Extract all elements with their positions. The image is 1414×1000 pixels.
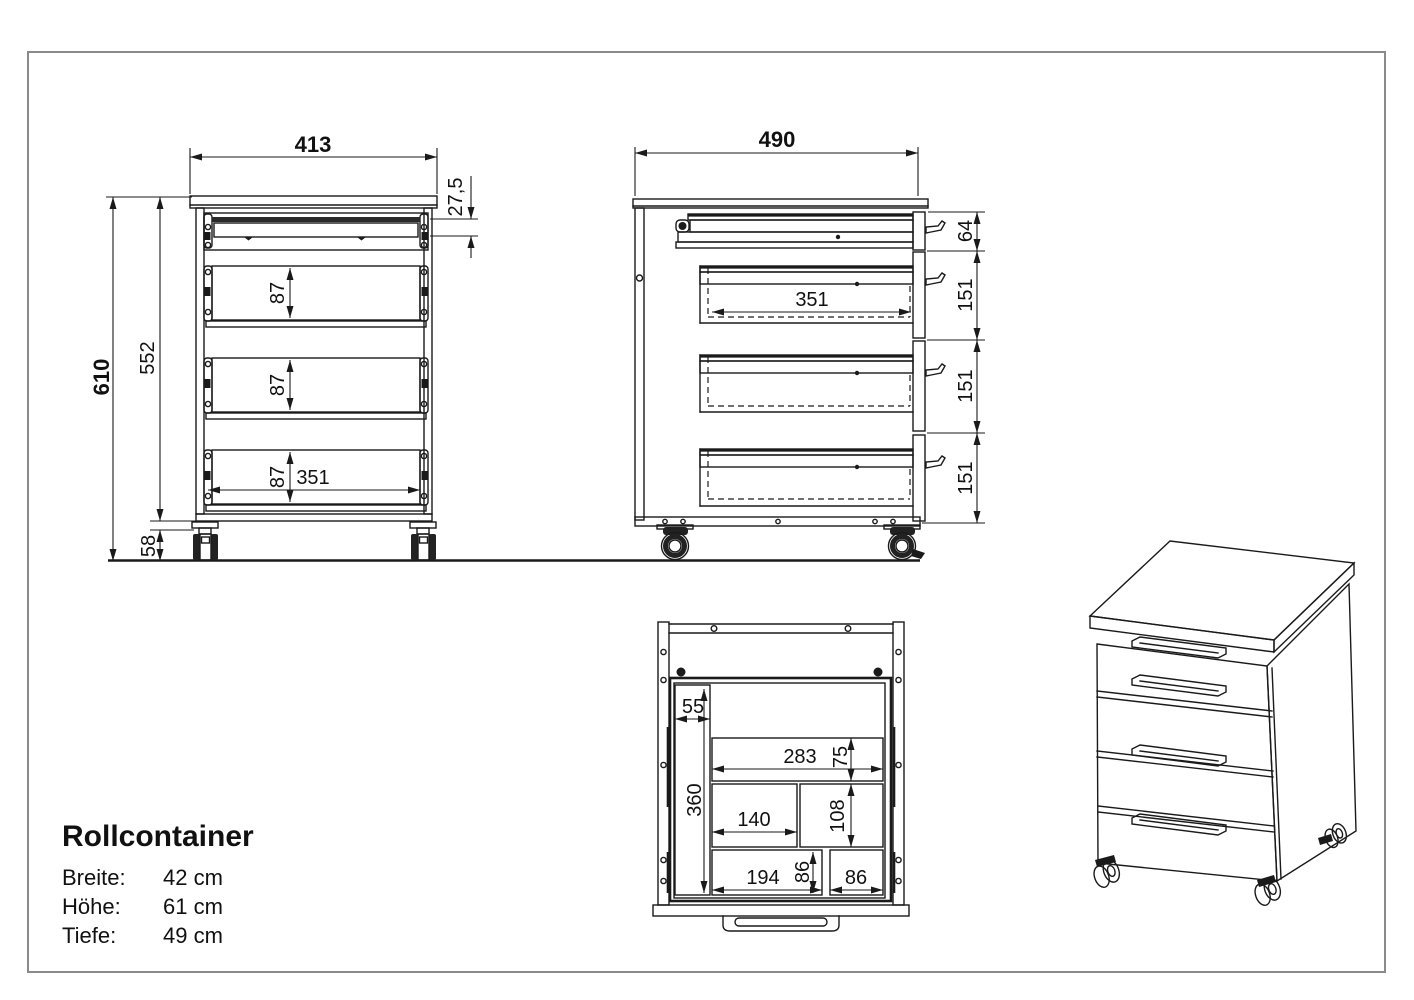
dim-front-inner-width: 351 — [296, 467, 329, 489]
product-title: Rollcontainer — [62, 820, 254, 854]
dim-front-top-gap: 27,5 — [445, 178, 467, 217]
side-caster-left — [657, 525, 693, 560]
spec-row-height: Höhe: 61 cm — [62, 892, 254, 921]
dim-comp-top-width: 283 — [783, 746, 816, 768]
dim-front-drawer2-height: 87 — [267, 282, 289, 304]
technical-drawing-page: 87 87 — [0, 0, 1414, 1000]
dim-tray-depth: 360 — [684, 783, 706, 816]
dim-front-width: 413 — [295, 132, 332, 157]
side-drawer-box-1 — [676, 214, 913, 248]
dim-comp-bottom2-width: 86 — [845, 867, 867, 889]
dim-comp-top-depth: 75 — [830, 746, 852, 768]
side-drawer-fronts — [913, 212, 945, 521]
dim-side-drawer2: 151 — [955, 278, 977, 311]
side-handle-2 — [926, 273, 945, 285]
persp-body — [1097, 584, 1356, 881]
side-caster-right — [884, 525, 925, 560]
top-view: 55 360 283 75 140 108 194 86 — [653, 622, 909, 931]
dim-comp-bottom-depth: 86 — [792, 861, 814, 883]
dim-front-caster-height: 58 — [138, 535, 160, 557]
spec-value-height: 61 cm — [163, 892, 223, 921]
dim-side-drawer3: 151 — [955, 369, 977, 402]
side-drawer-box-4 — [700, 449, 913, 506]
side-handle-1 — [926, 221, 945, 233]
dim-comp-mid-depth: 108 — [827, 799, 849, 832]
front-caster-left — [192, 522, 218, 560]
dim-front-height-total: 610 — [89, 359, 114, 396]
perspective-view — [1090, 541, 1356, 907]
spec-label-depth: Tiefe: — [62, 921, 163, 950]
persp-handles — [1132, 637, 1226, 835]
front-caster-right — [410, 522, 436, 560]
top-view-dimensions: 55 360 283 75 140 108 194 86 — [675, 689, 883, 893]
dim-comp-bottom-width: 194 — [746, 867, 779, 889]
dim-tray-width: 55 — [682, 696, 704, 718]
spec-value-width: 42 cm — [163, 863, 223, 892]
side-handle-3 — [926, 364, 945, 376]
dim-side-depth: 490 — [759, 127, 796, 152]
front-view: 87 87 — [89, 132, 920, 561]
spec-row-width: Breite: 42 cm — [62, 863, 254, 892]
dim-front-drawer4-height: 87 — [267, 466, 289, 488]
front-drawer-4: 87 351 — [204, 450, 428, 511]
dim-comp-mid-width: 140 — [737, 809, 770, 831]
persp-top-panel — [1090, 541, 1354, 652]
top-view-carcass — [658, 622, 904, 905]
front-drawer-3: 87 — [204, 358, 428, 419]
spec-value-depth: 49 cm — [163, 921, 223, 950]
spec-label-width: Breite: — [62, 863, 163, 892]
side-drawer-box-3 — [700, 355, 913, 412]
dim-front-height-body: 552 — [137, 341, 159, 374]
side-drawer-box-2: 351 — [700, 266, 913, 323]
front-drawer-1 — [204, 213, 428, 250]
side-view: 351 — [633, 127, 985, 560]
dim-side-inner-depth: 351 — [795, 289, 828, 311]
front-drawer-2: 87 — [204, 266, 428, 327]
dim-side-drawer4: 151 — [955, 461, 977, 494]
side-dimensions: 490 64 151 151 151 — [635, 127, 985, 523]
side-handle-4 — [926, 456, 945, 468]
spec-row-depth: Tiefe: 49 cm — [62, 921, 254, 950]
dim-side-top-drawer: 64 — [955, 220, 977, 242]
dim-front-drawer3-height: 87 — [267, 374, 289, 396]
top-view-drawer-front — [653, 905, 909, 931]
title-block: Rollcontainer Breite: 42 cm Höhe: 61 cm … — [62, 820, 254, 950]
spec-label-height: Höhe: — [62, 892, 163, 921]
